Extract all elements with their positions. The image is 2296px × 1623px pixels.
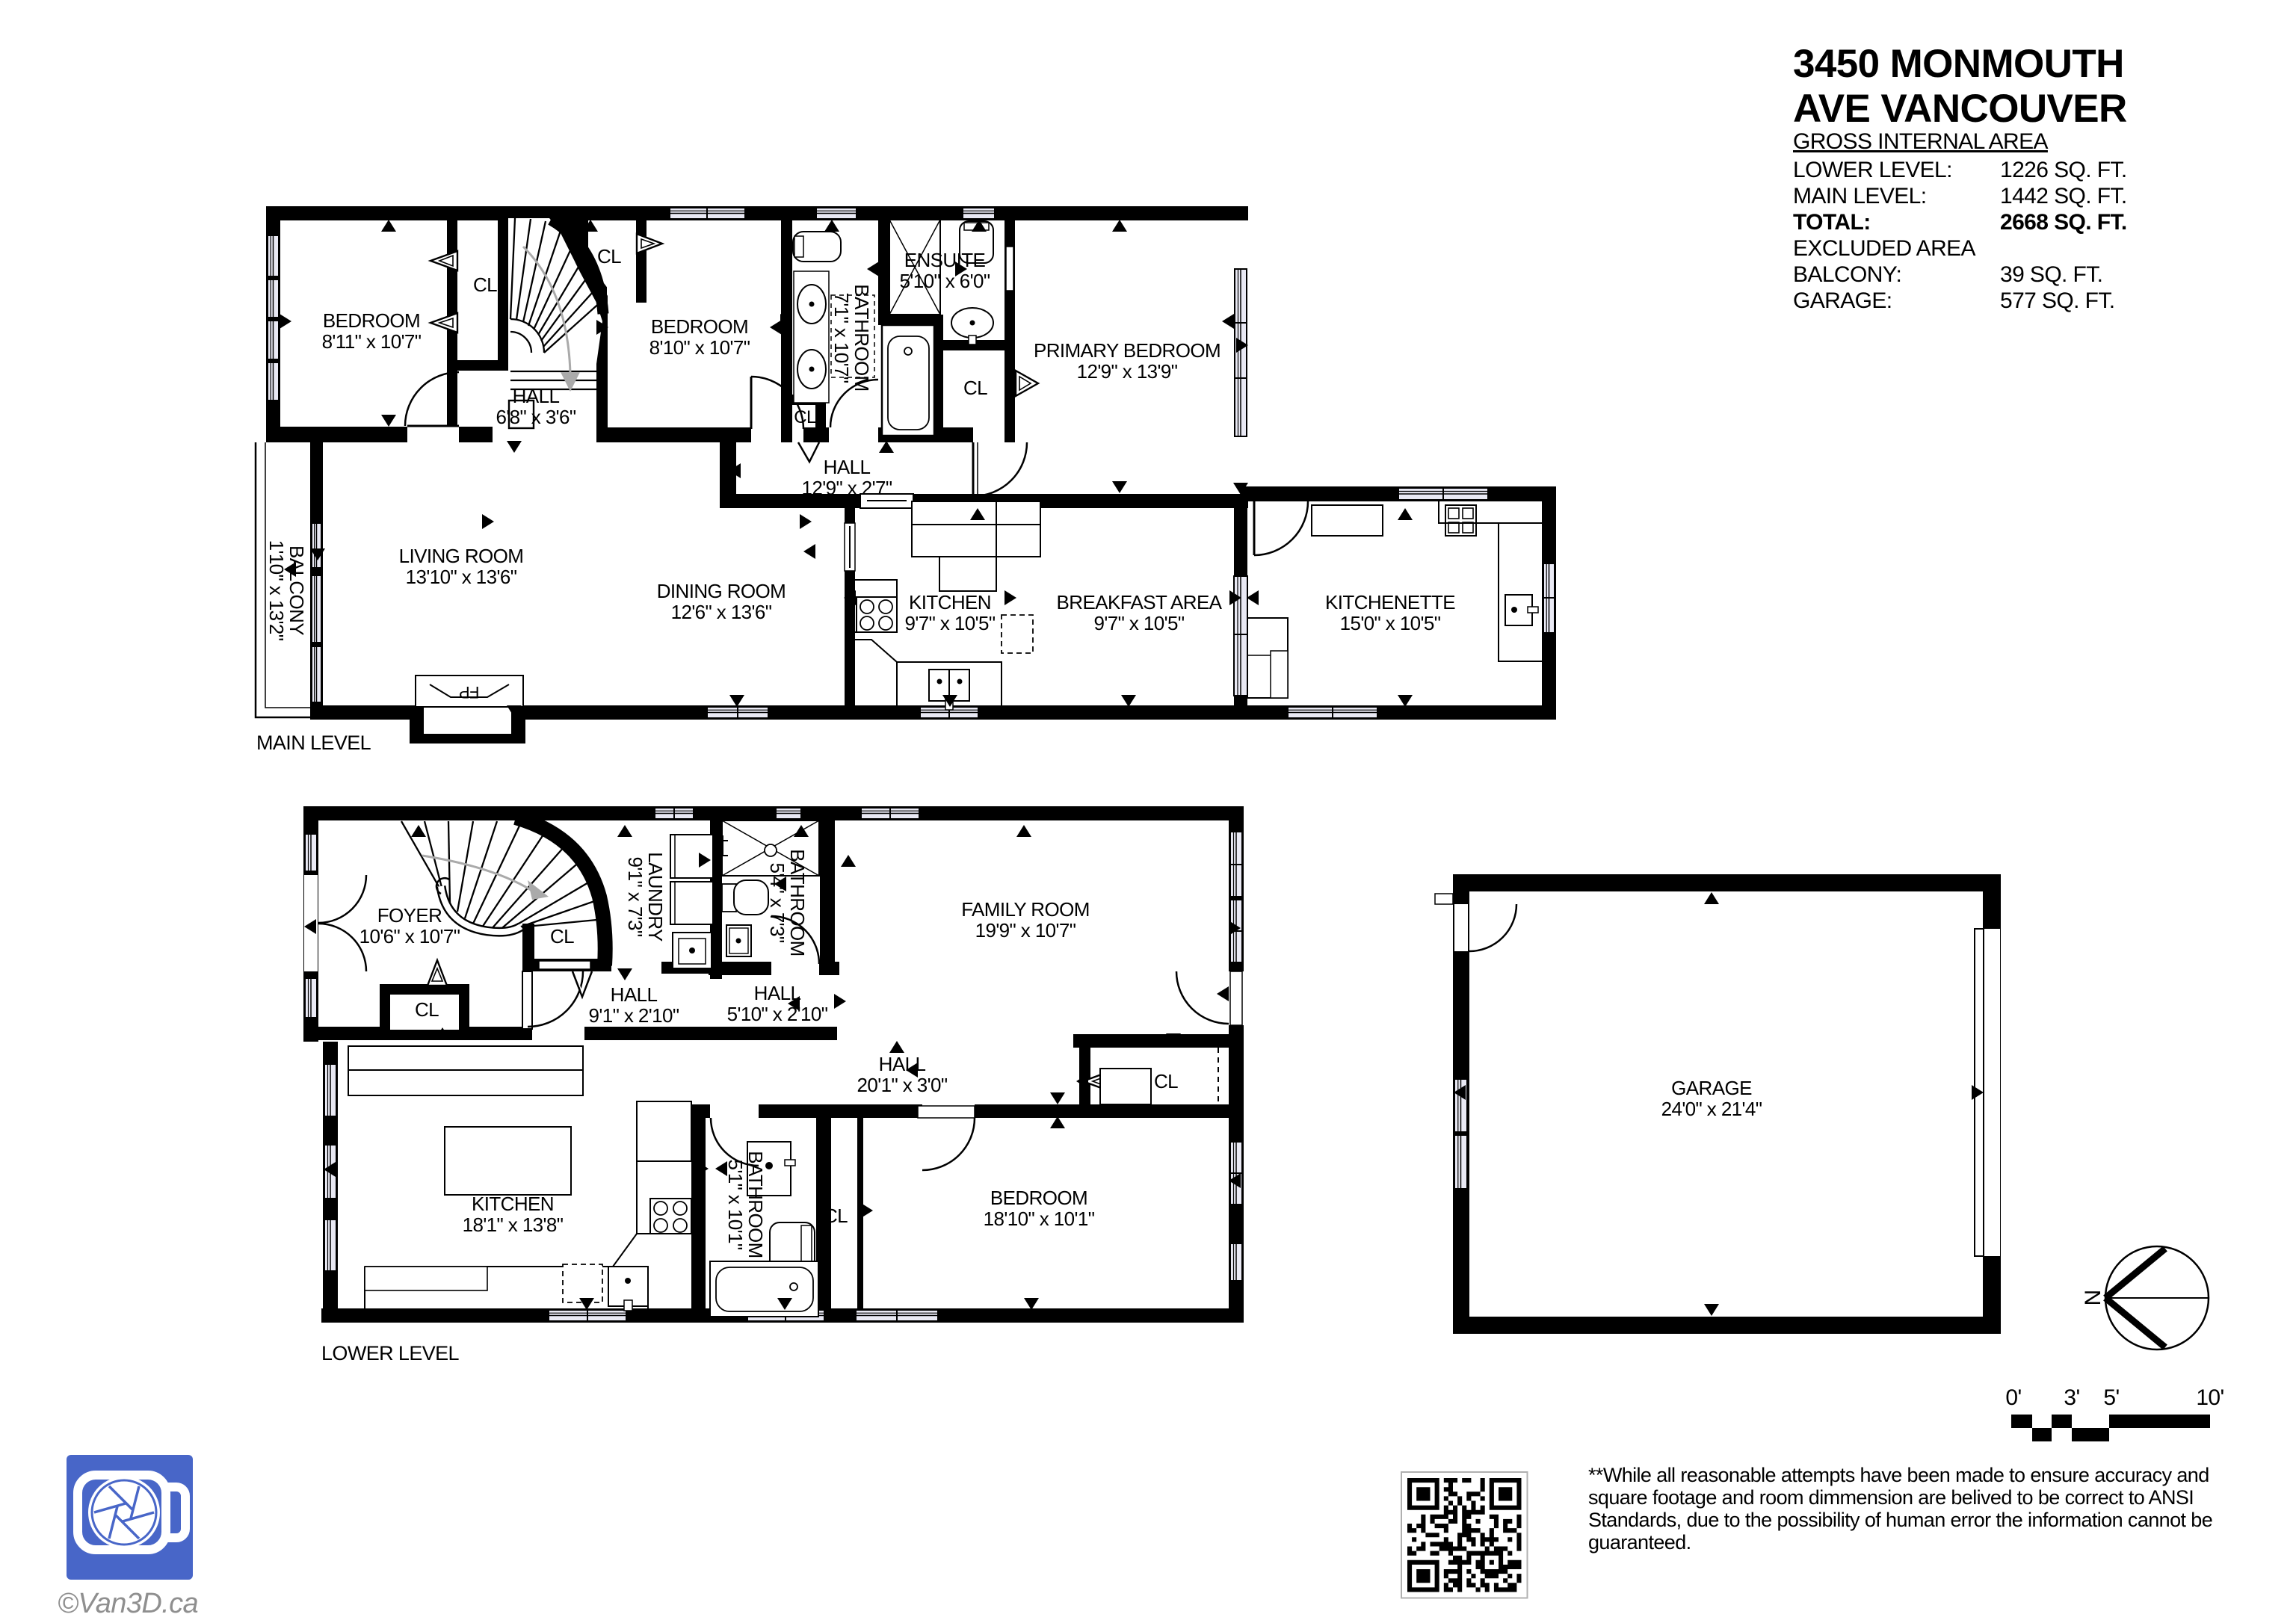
- svg-text:8'11" x 10'7": 8'11" x 10'7": [322, 330, 422, 353]
- svg-text:KITCHEN: KITCHEN: [472, 1193, 554, 1215]
- svg-text:9'1" x 7'3": 9'1" x 7'3": [624, 856, 646, 936]
- svg-text:BATHROOM: BATHROOM: [851, 284, 873, 392]
- svg-text:12'6" x 13'6": 12'6" x 13'6": [671, 601, 772, 623]
- svg-text:guaranteed.: guaranteed.: [1588, 1531, 1691, 1554]
- svg-text:BALCONY:: BALCONY:: [1793, 262, 1901, 287]
- svg-text:1226 SQ. FT.: 1226 SQ. FT.: [2000, 158, 2127, 182]
- svg-text:3450 MONMOUTH: 3450 MONMOUTH: [1793, 42, 2124, 86]
- svg-text:2668 SQ. FT.: 2668 SQ. FT.: [2000, 210, 2127, 235]
- svg-text:BATHROOM: BATHROOM: [744, 1151, 767, 1258]
- svg-text:HALL: HALL: [824, 456, 871, 478]
- svg-text:3': 3': [2064, 1385, 2079, 1410]
- svg-text:5'10" x 2'10": 5'10" x 2'10": [727, 1003, 828, 1025]
- svg-text:15'0" x 10'5": 15'0" x 10'5": [1340, 612, 1441, 634]
- svg-text:BEDROOM: BEDROOM: [651, 315, 748, 338]
- svg-text:GROSS INTERNAL AREA: GROSS INTERNAL AREA: [1793, 129, 2049, 154]
- svg-text:MAIN LEVEL:: MAIN LEVEL:: [1793, 184, 1926, 208]
- svg-text:FAMILY ROOM: FAMILY ROOM: [961, 898, 1090, 921]
- svg-text:Standards, due to the possibil: Standards, due to the possibility of hum…: [1588, 1509, 2212, 1531]
- svg-text:24'0" x 21'4": 24'0" x 21'4": [1661, 1098, 1762, 1120]
- svg-text:18'1" x 13'8": 18'1" x 13'8": [463, 1214, 564, 1236]
- svg-text:5': 5': [2103, 1385, 2119, 1410]
- svg-text:HALL: HALL: [879, 1053, 926, 1075]
- svg-text:0': 0': [2005, 1385, 2021, 1410]
- svg-text:MAIN LEVEL: MAIN LEVEL: [256, 732, 371, 754]
- svg-text:LAUNDRY: LAUNDRY: [644, 852, 667, 942]
- svg-text:CL: CL: [794, 407, 816, 427]
- svg-text:LOWER LEVEL:: LOWER LEVEL:: [1793, 158, 1952, 182]
- svg-text:CL: CL: [550, 925, 574, 947]
- svg-text:KITCHEN: KITCHEN: [909, 591, 991, 613]
- svg-text:1442 SQ. FT.: 1442 SQ. FT.: [2000, 184, 2127, 208]
- svg-text:ENSUITE: ENSUITE: [904, 249, 986, 271]
- svg-text:13'10" x 13'6": 13'10" x 13'6": [406, 566, 517, 588]
- svg-text:12'9" x 13'9": 12'9" x 13'9": [1077, 360, 1178, 383]
- svg-text:CL: CL: [963, 377, 987, 399]
- svg-text:BALCONY: BALCONY: [286, 545, 308, 635]
- svg-text:N: N: [2081, 1290, 2105, 1305]
- svg-text:GARAGE: GARAGE: [1671, 1077, 1752, 1099]
- svg-text:TOTAL:: TOTAL:: [1793, 210, 1871, 235]
- svg-text:12'9" x 2'7": 12'9" x 2'7": [802, 477, 892, 499]
- svg-text:LIVING ROOM: LIVING ROOM: [399, 545, 524, 567]
- svg-text:HALL: HALL: [611, 983, 658, 1006]
- svg-text:8'10" x 10'7": 8'10" x 10'7": [649, 336, 750, 359]
- svg-text:square footage and room dimmen: square footage and room dimmension are b…: [1588, 1486, 2194, 1509]
- svg-text:7'1" x 10'7": 7'1" x 10'7": [830, 293, 853, 383]
- svg-text:9'7" x 10'5": 9'7" x 10'5": [905, 612, 996, 634]
- svg-text:20'1" x 3'0": 20'1" x 3'0": [857, 1074, 948, 1096]
- svg-text:CL: CL: [1154, 1070, 1178, 1092]
- svg-text:EXCLUDED AREA: EXCLUDED AREA: [1793, 236, 1976, 261]
- svg-text:FOYER: FOYER: [377, 904, 442, 927]
- svg-text:**While all reasonable attempt: **While all reasonable attempts have bee…: [1588, 1464, 2209, 1486]
- svg-text:LOWER LEVEL: LOWER LEVEL: [321, 1342, 460, 1364]
- svg-text:5'10" x 6'0": 5'10" x 6'0": [900, 270, 990, 292]
- svg-text:KITCHENETTE: KITCHENETTE: [1325, 591, 1455, 613]
- svg-text:10': 10': [2196, 1385, 2224, 1410]
- svg-text:5'1" x 10'1": 5'1" x 10'1": [724, 1160, 747, 1250]
- svg-text:PRIMARY BEDROOM: PRIMARY BEDROOM: [1034, 339, 1220, 362]
- svg-text:9'7" x 10'5": 9'7" x 10'5": [1094, 612, 1185, 634]
- svg-text:CL: CL: [597, 245, 621, 268]
- svg-text:BEDROOM: BEDROOM: [990, 1187, 1087, 1209]
- svg-text:GARAGE:: GARAGE:: [1793, 288, 1892, 313]
- svg-text:5'4" x 7'3": 5'4" x 7'3": [766, 862, 789, 942]
- svg-text:9'1" x 2'10": 9'1" x 2'10": [589, 1004, 679, 1027]
- svg-text:FP: FP: [460, 683, 480, 702]
- svg-text:AVE VANCOUVER: AVE VANCOUVER: [1793, 87, 2127, 131]
- svg-text:CL: CL: [473, 273, 497, 296]
- svg-text:DINING ROOM: DINING ROOM: [657, 580, 786, 602]
- svg-text:BATHROOM: BATHROOM: [786, 849, 809, 956]
- svg-text:18'10" x 10'1": 18'10" x 10'1": [984, 1208, 1095, 1230]
- svg-text:BREAKFAST AREA: BREAKFAST AREA: [1057, 591, 1223, 613]
- svg-text:BEDROOM: BEDROOM: [323, 309, 420, 332]
- svg-text:6'8" x 3'6": 6'8" x 3'6": [496, 406, 575, 428]
- svg-text:©Van3D.ca: ©Van3D.ca: [58, 1588, 198, 1619]
- svg-text:HALL: HALL: [513, 385, 560, 407]
- svg-text:CL: CL: [415, 998, 439, 1021]
- svg-text:1'10" x 13'2": 1'10" x 13'2": [265, 540, 288, 641]
- svg-text:577 SQ. FT.: 577 SQ. FT.: [2000, 288, 2114, 313]
- svg-text:10'6" x 10'7": 10'6" x 10'7": [359, 925, 460, 947]
- svg-text:19'9" x 10'7": 19'9" x 10'7": [975, 919, 1076, 942]
- svg-text:39 SQ. FT.: 39 SQ. FT.: [2000, 262, 2102, 287]
